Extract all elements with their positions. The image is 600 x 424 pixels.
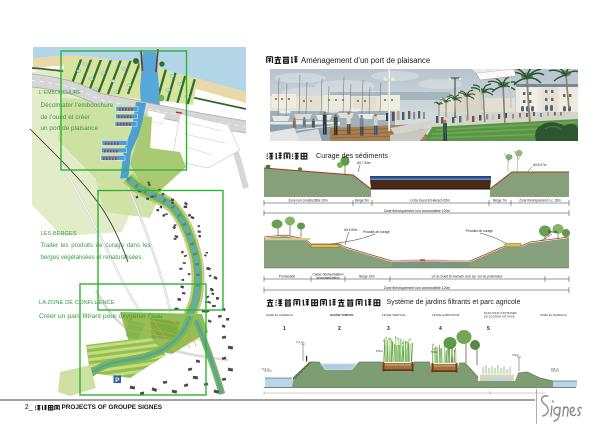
svg-text:Zone théoriquement n.c. 26m: Zone théoriquement n.c. 26m <box>519 199 561 203</box>
svg-text:Zone théoriquement non constru: Zone théoriquement non constructible 120… <box>384 209 451 213</box>
svg-text:2.4 m: 2.4 m <box>262 367 270 371</box>
svg-text:Promenade: Promenade <box>279 275 296 279</box>
svg-text:Produits de curage: Produits de curage <box>466 229 493 233</box>
svg-text:3: 3 <box>387 326 390 332</box>
svg-text:5.5m: 5.5m <box>431 350 438 354</box>
svg-text:4: 4 <box>439 326 442 332</box>
svg-text:1: 1 <box>283 326 286 332</box>
svg-text:2: 2 <box>338 326 341 332</box>
svg-text:Lit du Oued El Harrach curé su: Lit du Oued El Harrach curé sur 1m de pr… <box>432 275 504 279</box>
svg-text:Lit du Oued El Harrach 65m: Lit du Oued El Harrach 65m <box>410 199 450 203</box>
svg-text:Berge 5m: Berge 5m <box>355 199 369 203</box>
svg-text:Berge 7m: Berge 7m <box>493 199 507 203</box>
svg-text:4.9m: 4.9m <box>512 353 519 357</box>
svg-text:DE SOUTIEN D'ETIAGE: DE SOUTIEN D'ETIAGE <box>484 315 515 319</box>
svg-text:FILTRE VERTICAL: FILTRE VERTICAL <box>382 313 406 317</box>
svg-text:P: P <box>115 377 120 384</box>
svg-text:Alt 4.60m: Alt 4.60m <box>344 228 358 232</box>
svg-text:décontamination: décontamination <box>316 276 340 280</box>
svg-text:Zone non constructible 20m: Zone non constructible 20m <box>288 199 328 203</box>
svg-text:FILTRE HORIZONTAL: FILTRE HORIZONTAL <box>432 313 460 317</box>
svg-text:5: 5 <box>487 326 490 332</box>
svg-text:Produits de curage: Produits de curage <box>363 230 390 234</box>
svg-text:7.3 m: 7.3 m <box>296 340 304 344</box>
svg-text:Alt 7.30m: Alt 7.30m <box>357 161 371 165</box>
svg-text:2.6 m: 2.6 m <box>551 367 559 371</box>
svg-text:6.5m: 6.5m <box>376 349 383 353</box>
svg-text:Zone théoriquement non constru: Zone théoriquement non constructible 120… <box>384 286 451 290</box>
svg-text:OUED EL HARRACH: OUED EL HARRACH <box>540 313 567 317</box>
svg-text:Alt 5.07m: Alt 5.07m <box>533 163 547 167</box>
svg-text:BASSIN TAMPON: BASSIN TAMPON <box>330 313 353 317</box>
svg-text:OUED EL HARRACH: OUED EL HARRACH <box>266 313 293 317</box>
svg-text:Détails: Détails <box>548 230 558 234</box>
svg-text:Berge 10m: Berge 10m <box>359 275 375 279</box>
